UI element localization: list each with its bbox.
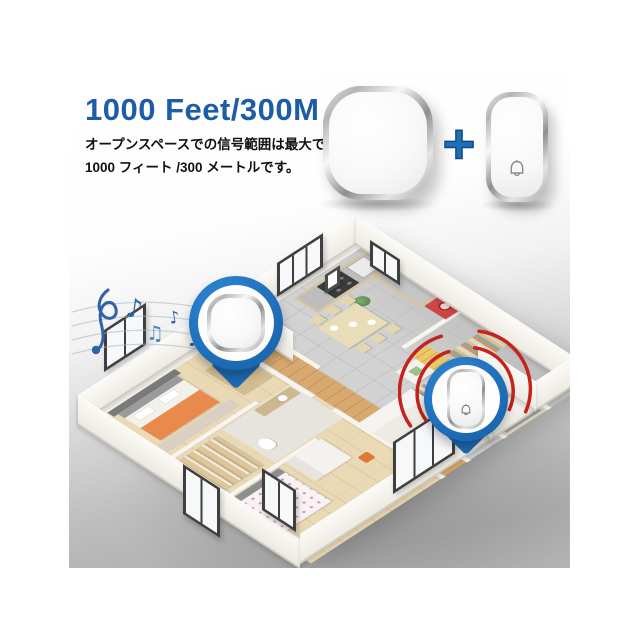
bell-icon xyxy=(458,403,474,419)
receiver-location-pin xyxy=(189,276,283,396)
pin-inner xyxy=(198,285,274,361)
doorbell-button-image xyxy=(486,92,548,202)
doorbell-receiver-image xyxy=(207,294,265,352)
description-line1: オープンスペースでの信号範囲は最大で xyxy=(85,133,335,153)
page-title: 1000 Feet/300M xyxy=(85,92,319,128)
pin-circle xyxy=(424,357,508,441)
treble-clef-icon xyxy=(92,290,116,354)
doorbell-receiver-image xyxy=(323,86,433,200)
product-image-canvas: 1000 Feet/300M オープンスペースでの信号範囲は最大で 1000 フ… xyxy=(0,0,640,640)
plus-icon: + xyxy=(436,116,482,172)
receiver-face xyxy=(329,92,427,194)
pin-circle xyxy=(189,276,283,370)
description-line2: 1000 フィート /300 メートルです。 xyxy=(85,156,335,176)
button-location-pin xyxy=(424,357,508,465)
music-note-icon: ♪ xyxy=(167,307,181,329)
music-note-icon: ♪ xyxy=(124,293,145,325)
doorbell-face xyxy=(491,97,543,197)
doorbell-button-image xyxy=(447,369,485,429)
content-area: 1000 Feet/300M オープンスペースでの信号範囲は最大で 1000 フ… xyxy=(69,70,570,568)
bell-icon xyxy=(505,158,529,182)
music-note-icon: ♫ xyxy=(146,321,164,345)
pin-inner xyxy=(432,365,500,433)
